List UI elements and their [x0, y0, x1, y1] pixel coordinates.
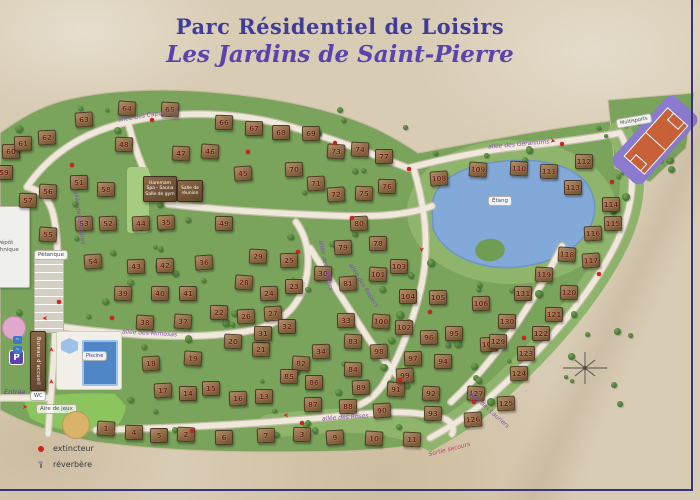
- house-71: 71: [307, 176, 326, 192]
- house-13: 13: [255, 389, 273, 404]
- house-15: 15: [202, 381, 220, 396]
- reception-label: Bureau d'accueil: [35, 337, 41, 385]
- spa-building: Hammam Spa - Sauna Salle de gym: [143, 176, 177, 202]
- house-7: 7: [257, 428, 276, 444]
- house-14: 14: [179, 386, 197, 401]
- house-25: 25: [280, 253, 299, 269]
- house-103: 103: [390, 259, 408, 274]
- extinguisher-marker: [522, 336, 526, 340]
- tree-icon: [105, 108, 109, 112]
- house-45: 45: [233, 165, 252, 181]
- house-43: 43: [127, 259, 146, 275]
- extinguisher-marker: [57, 300, 61, 304]
- house-119: 119: [535, 267, 554, 283]
- house-79: 79: [334, 240, 353, 256]
- tree-icon: [564, 375, 568, 379]
- tree-icon: [611, 382, 617, 388]
- house-37: 37: [173, 313, 192, 329]
- house-98: 98: [370, 344, 389, 360]
- house-122: 122: [532, 326, 550, 341]
- tree-icon: [230, 322, 235, 327]
- tree-icon: [305, 287, 310, 292]
- house-88: 88: [339, 399, 358, 415]
- extinguisher-marker: [300, 421, 304, 425]
- house-112: 112: [575, 154, 593, 169]
- house-108: 108: [429, 170, 448, 186]
- map-border-bottom: [0, 489, 693, 491]
- house-116: 116: [584, 226, 603, 242]
- petanque-label: Pétanque: [34, 250, 68, 260]
- house-49: 49: [215, 216, 233, 231]
- extinguisher-marker: [610, 180, 614, 184]
- house-21: 21: [252, 342, 271, 358]
- house-120: 120: [560, 285, 579, 301]
- tree-icon: [526, 147, 532, 153]
- tree-icon: [222, 319, 230, 327]
- house-3: 3: [293, 427, 312, 443]
- house-84: 84: [344, 362, 363, 378]
- house-34: 34: [312, 344, 331, 360]
- tree-icon: [628, 333, 633, 338]
- extinguisher-marker: [472, 400, 476, 404]
- extinguisher-marker: [110, 316, 114, 320]
- tree-icon: [476, 377, 483, 384]
- tree-icon: [622, 193, 630, 201]
- house-17: 17: [154, 383, 173, 399]
- parking-lot: [34, 255, 64, 333]
- tree-icon: [352, 232, 357, 237]
- house-72: 72: [326, 186, 345, 202]
- house-105: 105: [429, 290, 447, 305]
- tree-icon: [341, 118, 346, 123]
- extinguisher-marker: [407, 167, 411, 171]
- house-6: 6: [215, 430, 233, 445]
- house-102: 102: [395, 320, 414, 336]
- house-38: 38: [136, 315, 155, 331]
- house-63: 63: [74, 111, 93, 127]
- direction-arrow-icon: ➤: [417, 246, 424, 252]
- direction-arrow-icon: ➤: [549, 138, 556, 146]
- park-title-line1: Parc Résidentiel de Loisirs: [0, 14, 680, 39]
- extinguisher-marker: [333, 141, 337, 145]
- tree-icon: [509, 288, 514, 293]
- house-106: 106: [472, 296, 491, 312]
- tree-icon: [380, 364, 387, 371]
- house-16: 16: [229, 391, 248, 407]
- direction-arrow-icon: ➤: [48, 379, 55, 385]
- park-map: Dépôt technique Pétanque Bureau d'accuei…: [0, 0, 700, 500]
- tree-icon: [114, 127, 121, 134]
- depot-building: Dépôt technique: [0, 206, 30, 288]
- house-113: 113: [564, 180, 582, 195]
- house-19: 19: [183, 350, 202, 366]
- house-110: 110: [510, 161, 529, 177]
- house-39: 39: [114, 286, 133, 302]
- tree-icon: [127, 397, 133, 403]
- house-46: 46: [200, 143, 219, 159]
- house-67: 67: [245, 121, 263, 136]
- house-125: 125: [497, 396, 516, 412]
- depot-label-1: Dépôt: [0, 240, 19, 247]
- depot-label-2: technique: [0, 247, 19, 254]
- house-11: 11: [403, 432, 422, 448]
- house-66: 66: [215, 115, 234, 131]
- park-title-line2: Les Jardins de Saint-Pierre: [0, 41, 680, 68]
- house-85: 85: [280, 369, 298, 384]
- tree-icon: [102, 298, 109, 305]
- tree-icon: [201, 278, 206, 283]
- tree-icon: [445, 342, 451, 348]
- tree-icon: [153, 409, 158, 414]
- house-4: 4: [125, 425, 143, 440]
- house-96: 96: [420, 330, 438, 345]
- map-title: Parc Résidentiel de Loisirs Les Jardins …: [0, 14, 680, 68]
- house-55: 55: [38, 226, 57, 242]
- extinguisher-marker: [350, 216, 354, 220]
- meeting-room-building: Salle de réunion: [177, 180, 203, 202]
- house-97: 97: [404, 351, 423, 367]
- house-10: 10: [364, 430, 383, 446]
- house-23: 23: [285, 279, 303, 294]
- direction-arrow-icon: ➤: [48, 347, 55, 353]
- house-83: 83: [344, 334, 363, 350]
- house-76: 76: [378, 179, 396, 194]
- house-42: 42: [156, 258, 174, 273]
- house-40: 40: [151, 286, 169, 301]
- house-47: 47: [172, 146, 191, 162]
- map-legend: extincteur réverbère: [38, 444, 94, 476]
- house-36: 36: [194, 254, 213, 270]
- house-56: 56: [39, 184, 58, 200]
- direction-arrow-icon: ➤: [22, 404, 28, 411]
- spa-label-2: Spa - Sauna: [145, 186, 174, 191]
- playground-sand-circle: [62, 411, 90, 439]
- reception-building: Bureau d'accueil: [30, 331, 46, 391]
- tree-icon: [272, 409, 276, 413]
- lake-label: Étang: [488, 196, 512, 206]
- house-70: 70: [285, 162, 304, 178]
- house-129: 129: [489, 334, 508, 350]
- extinguisher-marker: [150, 118, 154, 122]
- waterslide-icon: ~: [13, 336, 22, 344]
- house-73: 73: [326, 143, 345, 159]
- tree-icon: [78, 106, 83, 111]
- house-59: 59: [0, 165, 13, 180]
- extinguisher-marker: [296, 250, 300, 254]
- house-57: 57: [19, 193, 38, 209]
- legend-extinguisher-label: extincteur: [53, 444, 94, 453]
- entrance-label: Entrée: [4, 388, 25, 396]
- house-104: 104: [399, 289, 417, 304]
- house-95: 95: [445, 326, 463, 341]
- extinguisher-marker: [70, 163, 74, 167]
- streetlamp-icon: [38, 462, 44, 468]
- tree-icon: [361, 168, 366, 173]
- house-18: 18: [141, 355, 160, 371]
- map-border-right: [691, 0, 693, 491]
- house-75: 75: [355, 186, 374, 202]
- house-115: 115: [604, 216, 623, 232]
- legend-streetlamp-label: réverbère: [53, 460, 92, 469]
- house-26: 26: [237, 309, 256, 325]
- house-100: 100: [371, 313, 390, 329]
- house-109: 109: [468, 161, 487, 177]
- house-86: 86: [305, 375, 323, 390]
- house-22: 22: [210, 305, 228, 320]
- house-20: 20: [224, 334, 243, 350]
- house-69: 69: [302, 126, 320, 141]
- spa-label-3: Salle de gym: [145, 192, 174, 197]
- tree-icon: [158, 246, 164, 252]
- house-121: 121: [545, 307, 563, 322]
- extinguisher-marker: [560, 142, 564, 146]
- tree-icon: [379, 286, 386, 293]
- house-29: 29: [249, 249, 268, 265]
- house-28: 28: [234, 274, 253, 290]
- house-124: 124: [510, 366, 529, 382]
- extinguisher-marker: [190, 429, 194, 433]
- meeting-room-label: Salle de réunion: [178, 186, 202, 197]
- tree-icon: [352, 168, 358, 174]
- extinguisher-marker: [246, 150, 250, 154]
- house-33: 33: [337, 313, 355, 328]
- wc-label: WC: [30, 391, 46, 401]
- house-101: 101: [369, 267, 388, 283]
- house-51: 51: [70, 175, 88, 190]
- house-5: 5: [150, 428, 168, 443]
- main-pool: [82, 340, 118, 386]
- house-58: 58: [97, 182, 115, 197]
- tree-icon: [302, 190, 307, 195]
- house-130: 130: [498, 314, 516, 329]
- house-123: 123: [517, 346, 535, 361]
- house-92: 92: [422, 386, 441, 402]
- house-87: 87: [304, 397, 322, 412]
- house-91: 91: [386, 381, 405, 397]
- tree-icon: [616, 174, 621, 179]
- tree-icon: [454, 340, 462, 348]
- house-52: 52: [99, 216, 118, 232]
- house-68: 68: [272, 125, 290, 140]
- house-94: 94: [434, 354, 452, 369]
- direction-arrow-icon: ➤: [42, 314, 48, 321]
- house-1: 1: [96, 420, 115, 436]
- house-32: 32: [278, 319, 296, 334]
- house-74: 74: [351, 142, 370, 158]
- spa-pool-icon: ~: [13, 346, 22, 354]
- house-41: 41: [179, 286, 197, 301]
- tree-icon: [568, 353, 574, 359]
- house-61: 61: [14, 136, 33, 152]
- house-31: 31: [254, 326, 272, 341]
- house-117: 117: [581, 252, 600, 268]
- tree-icon: [16, 309, 22, 315]
- tree-icon: [396, 311, 404, 319]
- house-89: 89: [352, 380, 371, 396]
- extinguisher-marker: [597, 272, 601, 276]
- house-35: 35: [157, 215, 176, 231]
- tree-icon: [312, 427, 318, 433]
- house-9: 9: [325, 429, 344, 445]
- house-118: 118: [557, 246, 576, 262]
- tree-icon: [185, 217, 191, 223]
- house-93: 93: [424, 406, 443, 422]
- house-44: 44: [132, 216, 151, 232]
- extinguisher-marker: [398, 378, 402, 382]
- tree-icon: [110, 250, 116, 256]
- pool-label: Piscine: [82, 351, 107, 361]
- house-62: 62: [38, 130, 57, 146]
- tree-icon: [477, 282, 483, 288]
- house-114: 114: [602, 197, 620, 212]
- tree-icon: [15, 125, 23, 133]
- extinguisher-icon: [38, 446, 44, 452]
- house-54: 54: [83, 253, 102, 269]
- extinguisher-marker: [428, 310, 432, 314]
- house-111: 111: [540, 164, 559, 180]
- tree-icon: [535, 290, 543, 298]
- house-78: 78: [369, 236, 387, 251]
- house-90: 90: [372, 402, 391, 418]
- tree-icon: [666, 157, 673, 164]
- direction-arrow-icon: ➤: [283, 411, 289, 418]
- house-131: 131: [514, 286, 532, 301]
- house-48: 48: [115, 137, 134, 153]
- house-24: 24: [260, 286, 278, 301]
- house-126: 126: [463, 411, 482, 427]
- tree-icon: [484, 153, 488, 157]
- tree-icon: [403, 125, 408, 130]
- tree-icon: [408, 272, 414, 278]
- house-77: 77: [375, 149, 393, 164]
